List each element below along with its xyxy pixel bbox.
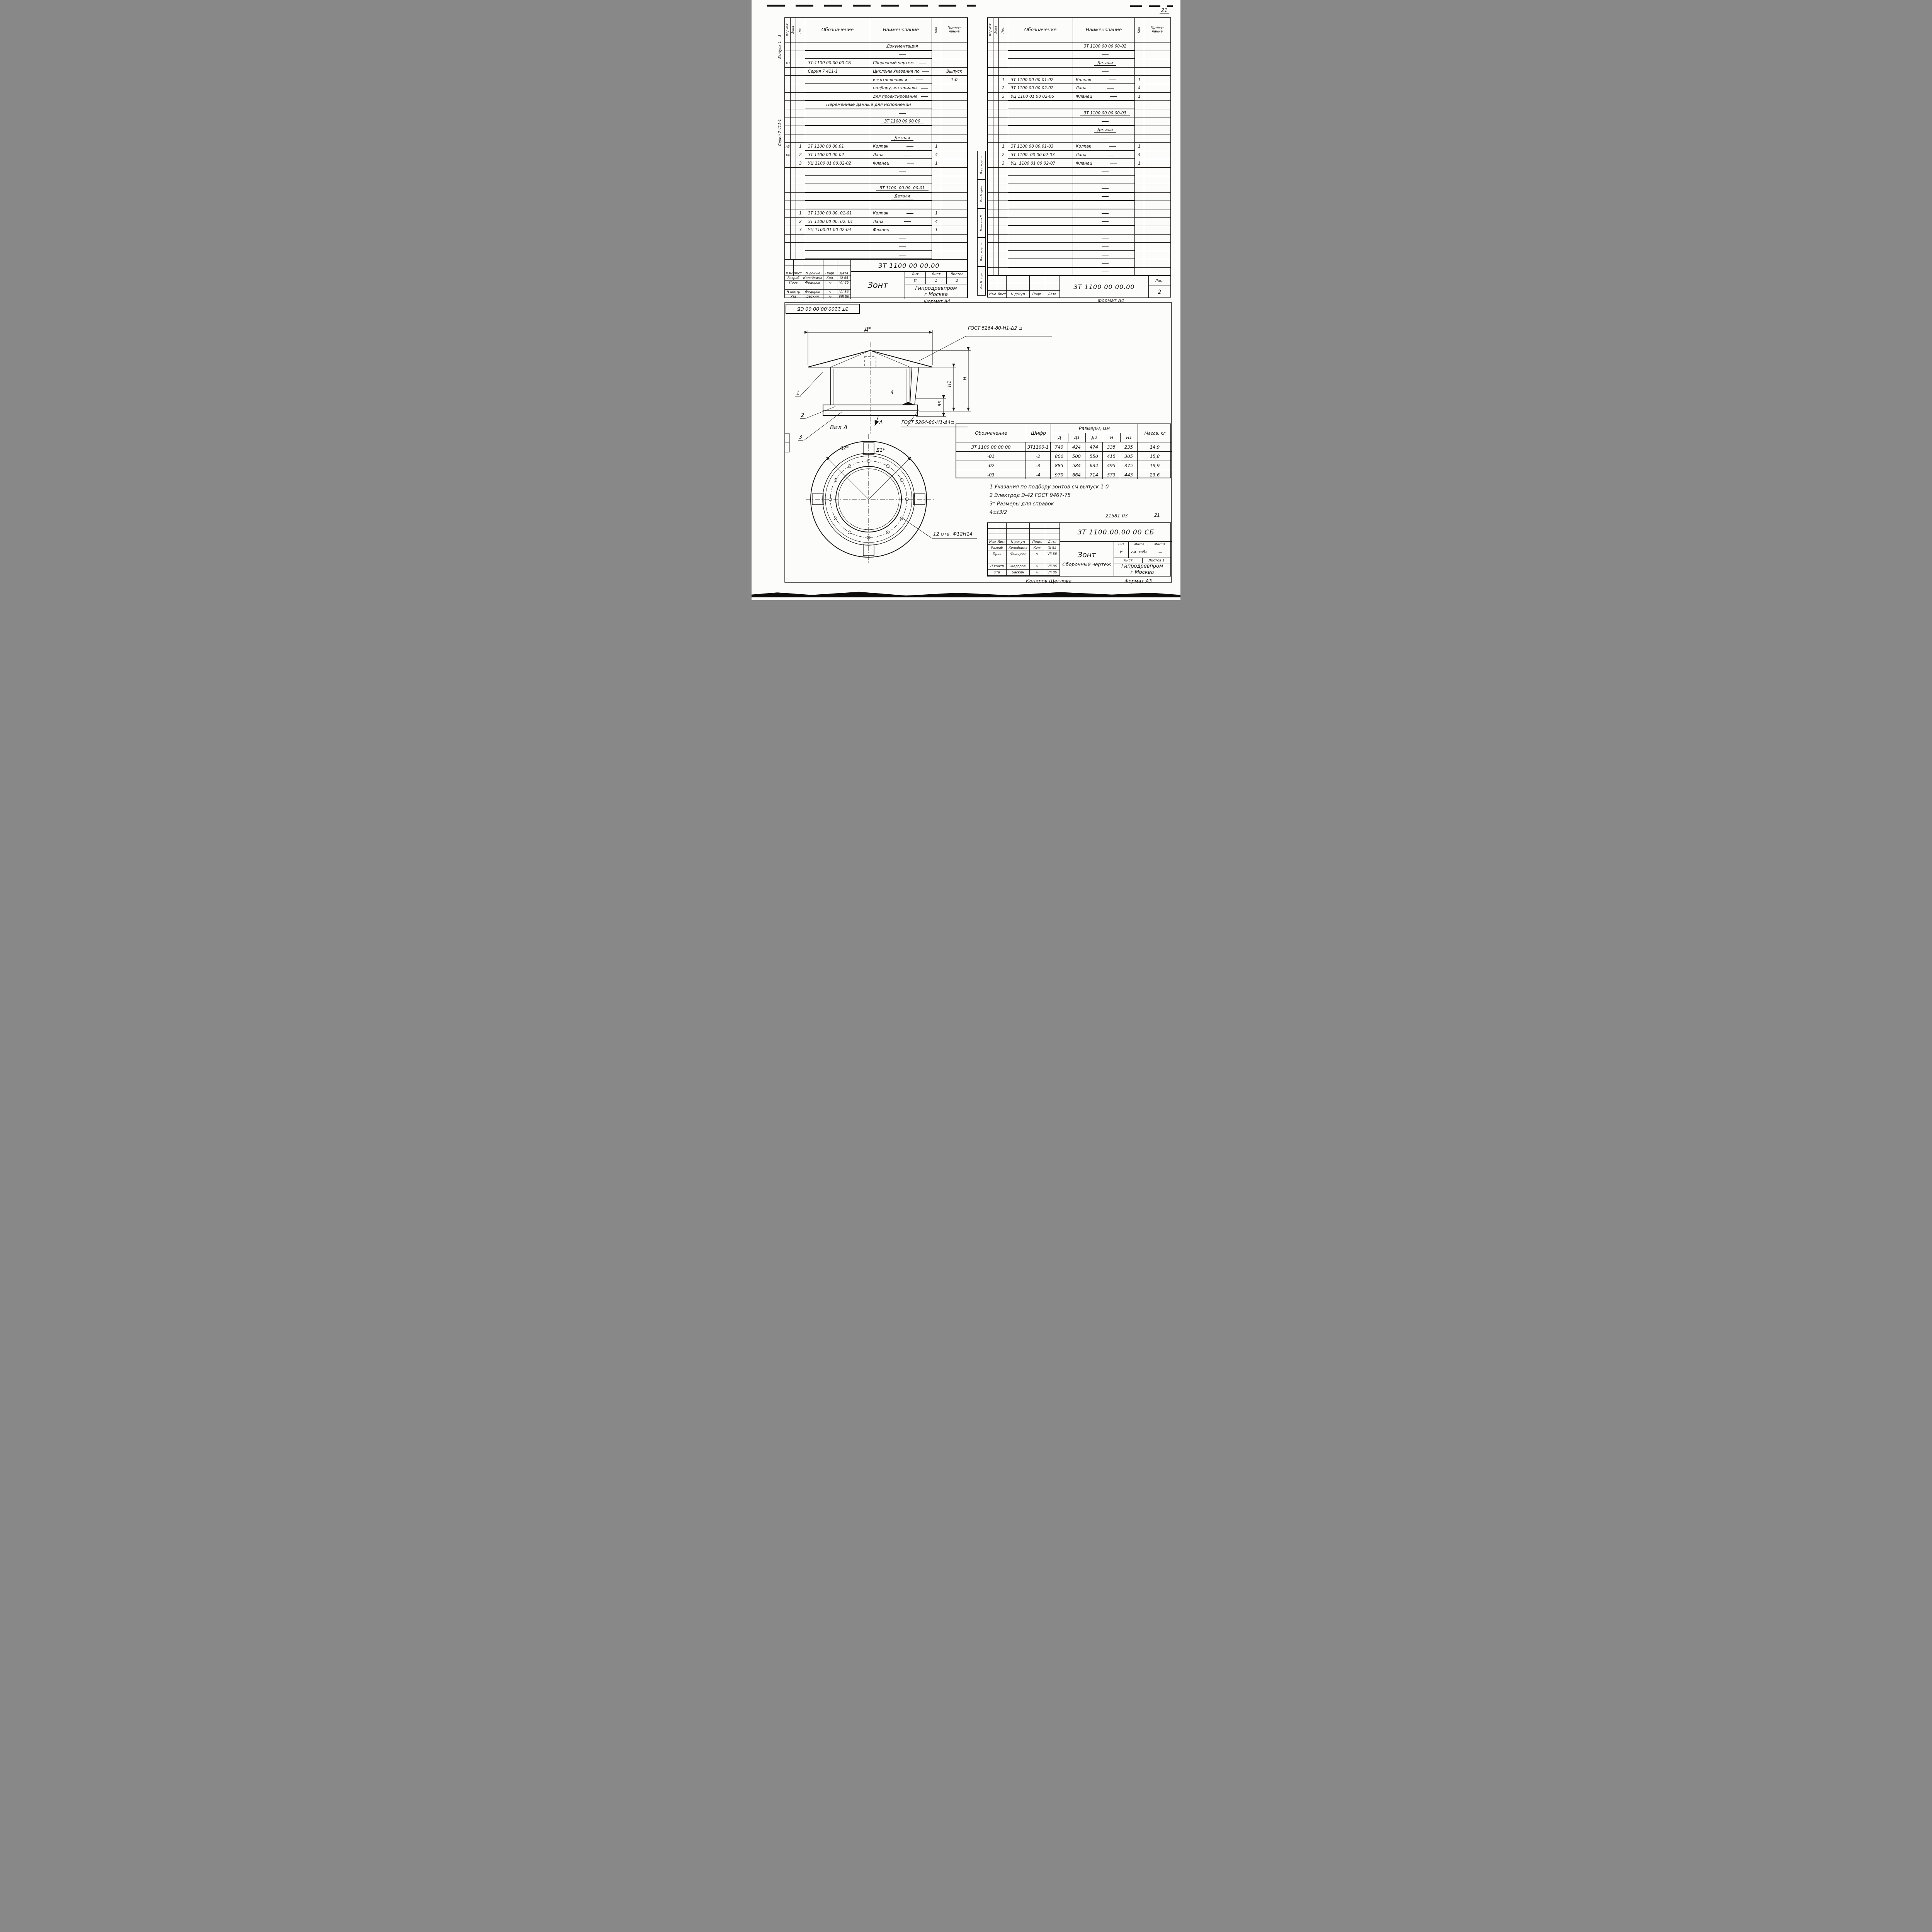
title-block-right: Изм Лист N докум Подп. Дата ЗТ 1100 00 0…	[988, 275, 1170, 297]
cell-qty: 1	[932, 143, 941, 151]
table-row	[988, 209, 1170, 218]
dim-d: 970	[1051, 470, 1068, 479]
doc-number-text: ЗТ 1100 00 00.00	[1073, 283, 1134, 291]
table-row	[988, 251, 1170, 260]
sig-name: Федоров	[1010, 552, 1026, 556]
sig-col-sign: Подп.	[1032, 540, 1043, 544]
org-name-line1: Гипродревпром	[1121, 563, 1163, 570]
cell-qty	[1135, 51, 1144, 59]
cell-qty	[932, 251, 941, 259]
cell-format: А3	[785, 143, 791, 151]
sig-row: Пров Федоров ∿ VII 86	[785, 281, 850, 285]
mass-label-text: Масса	[1134, 543, 1145, 546]
cell-qty	[1135, 117, 1144, 126]
dim-d1: 664	[1068, 470, 1085, 479]
cell-span-text	[1008, 201, 1135, 209]
dim-col-d1: Д1	[1068, 433, 1085, 442]
col-zone-label: Зона	[791, 26, 794, 34]
cell-note	[1144, 184, 1170, 192]
part-title: Зонт	[851, 271, 905, 299]
cell-qty	[1135, 126, 1144, 134]
d1-label-text: Д1*	[876, 447, 885, 453]
holes-label: 12 отв. Ф12Н14	[933, 531, 973, 537]
table-row: 1 ЗТ 1100 00 00.01-03 Колпак 1	[988, 143, 1170, 151]
cell-qty-text: 1	[1138, 161, 1141, 166]
cell-note	[1144, 218, 1170, 226]
cell-format: А3	[785, 59, 791, 67]
cell-pos-text: 2	[799, 219, 802, 224]
cell-zone	[791, 84, 796, 92]
cell-zone	[791, 176, 796, 184]
cell-qty-text: 4	[935, 153, 938, 157]
table-row: 2 ЗТ 1100 00 00 02-02 Лапа 4	[988, 84, 1170, 93]
cell-zone	[791, 151, 796, 159]
cell-note	[1144, 209, 1170, 218]
table-row: Документация	[785, 43, 967, 51]
cell-zone	[993, 117, 999, 126]
cell-qty	[932, 51, 941, 59]
col-qty-label: Кол	[935, 27, 938, 33]
dim-mass: 15,8	[1138, 452, 1172, 461]
dim-code: -2	[1026, 452, 1051, 461]
callout-3-text: 3	[799, 434, 802, 440]
cell-format	[785, 168, 791, 176]
cell-zone	[993, 176, 999, 184]
scale-label: Масшт.	[1150, 542, 1170, 547]
cell-format	[988, 201, 993, 209]
cell-qty	[932, 109, 941, 117]
sig-col-date: Дата	[1048, 293, 1056, 296]
cell-zone	[993, 101, 999, 109]
cell-qty	[932, 235, 941, 243]
cell-pos: 2	[999, 84, 1008, 92]
table-row: ЗТ 1100. 00.00. 00-01	[785, 184, 967, 193]
sig-name: Колейкина	[1009, 546, 1027, 550]
dim-col-h1-text: Н1	[1126, 435, 1132, 440]
frame-stamp-text: Инв N дубл	[980, 186, 983, 202]
dim-col-h: Н	[1103, 433, 1120, 442]
dim-col-d2: Д2	[1085, 433, 1103, 442]
dim-h: 335	[1103, 442, 1120, 451]
cell-qty: 1	[932, 159, 941, 167]
sig-col-izm: Изм	[989, 540, 996, 544]
dim-55-label: 55	[938, 401, 942, 406]
part-title: Зонт Сборочный чертеж	[1060, 542, 1114, 576]
cell-span-text	[805, 126, 932, 134]
copy-note: Копиров Щеглова	[1026, 578, 1071, 584]
cell-zone	[791, 76, 796, 84]
view-a	[806, 434, 977, 564]
dim-d1-text: 584	[1072, 463, 1081, 468]
frame-stamp-cell: Инв N подл	[977, 267, 986, 296]
cell-format	[988, 143, 993, 151]
doc-number: ЗТ 1100.00.00 00 СБ	[1060, 523, 1172, 542]
cell-pos: 2	[796, 151, 805, 159]
cell-zone	[791, 243, 796, 251]
format-caption-a3: Формат А3	[1124, 578, 1152, 584]
col-designation: Обозначение	[805, 18, 870, 42]
notes-list: 1 Указания по подбору зонтов см выпуск 1…	[990, 483, 1109, 517]
cell-zone	[791, 251, 796, 259]
dim-col-mass: Масса, кг	[1138, 424, 1172, 442]
cell-span-text	[805, 159, 932, 167]
sig-date: VIII 86	[839, 295, 849, 299]
cell-qty	[932, 184, 941, 192]
sheet-value-text: 2	[1158, 289, 1162, 295]
cell-format	[988, 209, 993, 218]
scale-value: —	[1150, 547, 1170, 558]
cell-span-text	[805, 209, 932, 218]
dim-designation: -01	[956, 452, 1026, 461]
table-row	[988, 184, 1170, 193]
cell-format	[988, 51, 993, 59]
frame-stamp-text: Подп и дата	[980, 156, 983, 174]
dim-mass: 23,6	[1138, 470, 1172, 479]
dim-mass-text: 14,9	[1150, 444, 1160, 450]
dim-d2-text: 634	[1090, 463, 1098, 468]
cell-pos-text: 2	[799, 153, 802, 157]
dim-col-sizes: Размеры, мм	[1051, 424, 1138, 433]
dim-h1-text: 375	[1124, 463, 1133, 468]
col-name: Наименование	[870, 18, 932, 42]
cell-format	[785, 251, 791, 259]
dim-col-h-text: Н	[1110, 435, 1113, 440]
cell-qty	[1135, 243, 1144, 251]
cell-zone	[993, 184, 999, 192]
cell-zone	[993, 93, 999, 101]
dim-mass: 14,9	[1138, 442, 1172, 451]
dim-code: ЗТ1100-1	[1026, 442, 1051, 451]
dim-h1: 443	[1120, 470, 1138, 479]
cell-note	[1144, 51, 1170, 59]
cell-span-text	[1008, 68, 1135, 76]
cell-note	[941, 143, 967, 151]
cell-pos: 1	[796, 209, 805, 218]
cell-pos	[999, 101, 1008, 109]
cell-qty	[1135, 59, 1144, 67]
margin-series-label: Серия 7 411-1	[778, 100, 782, 146]
cell-pos	[796, 43, 805, 51]
cell-pos	[796, 126, 805, 134]
cell-note	[941, 209, 967, 218]
cell-qty	[932, 76, 941, 84]
cell-pos	[999, 59, 1008, 67]
cell-span-text	[1008, 84, 1135, 92]
table-row	[988, 218, 1170, 226]
cell-format	[785, 43, 791, 51]
cell-zone	[993, 209, 999, 218]
cell-qty: 1	[1135, 93, 1144, 101]
dim-code: -4	[1026, 470, 1051, 479]
table-row	[988, 259, 1170, 268]
cell-qty-text: 4	[1138, 153, 1141, 157]
cell-format	[988, 168, 993, 176]
cell-span-text	[1008, 51, 1135, 59]
cell-zone	[791, 159, 796, 167]
cell-qty	[1135, 268, 1144, 276]
cell-zone	[993, 251, 999, 259]
sig-name: Федоров	[805, 281, 820, 285]
cell-span-text	[1008, 235, 1135, 243]
spec-table-right: Формат Зона Поз. Обозначение Наименовани…	[987, 17, 1171, 298]
cell-zone	[993, 151, 999, 159]
cell-span-text	[1008, 151, 1135, 159]
cell-note	[1144, 43, 1170, 51]
mass-value-text: см. табл	[1131, 550, 1148, 554]
cell-qty	[932, 117, 941, 126]
weld-note-bottom: ГОСТ 5264-80-Н1-Δ4⊐	[901, 420, 954, 425]
weld-note-top-text: ГОСТ 5264-80-Н1-Δ2 ⊐	[968, 325, 1022, 331]
cell-span-text	[1008, 101, 1135, 109]
cell-zone	[993, 51, 999, 59]
cell-pos-text: 1	[799, 211, 802, 216]
cell-format	[988, 109, 993, 117]
signature-icon: ∿	[1036, 565, 1039, 568]
cell-format	[785, 68, 791, 76]
dim-d-text: Д*	[864, 327, 871, 332]
cell-qty	[1135, 134, 1144, 143]
cell-pos	[796, 251, 805, 259]
frame-stamp-cell: Инв N дубл	[977, 180, 986, 209]
cell-span-text	[1008, 251, 1135, 259]
table-row: Детали	[785, 134, 967, 143]
weld-note-bottom-text: ГОСТ 5264-80-Н1-Δ4⊐	[901, 420, 954, 425]
table-row	[988, 226, 1170, 235]
signature-icon: Кол-	[827, 276, 834, 280]
cell-zone	[993, 109, 999, 117]
spec-body-left: Документация	[785, 43, 967, 259]
dim-d-label: Д*	[864, 327, 871, 332]
cell-note	[941, 51, 967, 59]
sig-row: Н контр Федоров ∿ VII 86	[988, 563, 1060, 570]
callout-2-text: 2	[801, 413, 804, 418]
mass-label: Масса	[1129, 542, 1150, 547]
sig-role: Пров	[993, 552, 1002, 556]
table-row	[988, 168, 1170, 176]
spec-header-right: Формат Зона Поз. Обозначение Наименовани…	[988, 18, 1170, 43]
cell-format	[988, 84, 993, 92]
cell-note	[1144, 109, 1170, 117]
cell-span-text	[805, 243, 932, 251]
part-title-text: Зонт	[1078, 551, 1096, 559]
col-format-label: Формат	[786, 24, 789, 36]
cell-zone	[993, 168, 999, 176]
cell-qty	[1135, 209, 1144, 218]
d2-label-text: Д2*	[840, 445, 849, 451]
dim-h: 573	[1103, 470, 1120, 479]
cell-format	[988, 176, 993, 184]
cell-format	[785, 218, 791, 226]
dim-col-code-text: Шифр	[1031, 430, 1046, 436]
dim-d1: 584	[1068, 461, 1085, 470]
cell-format	[988, 243, 993, 251]
cell-pos	[999, 201, 1008, 209]
col-note: Приме- чание	[1144, 18, 1170, 42]
cell-format	[785, 109, 791, 117]
cell-pos	[796, 193, 805, 201]
cell-qty	[1135, 251, 1144, 259]
dim-designation-text: -02	[987, 463, 995, 468]
cell-qty	[932, 168, 941, 176]
doc-number: ЗТ 1100 00 00.00	[851, 260, 967, 271]
cell-pos-text: 1	[1002, 144, 1005, 149]
callout-1: 1	[795, 390, 801, 396]
sheets-label-text: Листов	[951, 272, 964, 276]
cell-span-text	[1008, 159, 1135, 167]
page-number: 21	[1160, 8, 1169, 14]
dim-d-text: 800	[1055, 454, 1063, 459]
cell-format-text: А3	[786, 61, 790, 65]
cell-format	[785, 235, 791, 243]
cell-format	[988, 126, 993, 134]
dim-h-text: Н	[962, 377, 968, 380]
table-row: 3 УЦ 1100 01 00 02-06 Фланец 1	[988, 93, 1170, 101]
table-row: 3 УЦ 1100.01 00 02-04 Фланец 1	[785, 226, 967, 235]
cell-note: Выпуск	[941, 68, 967, 76]
cell-note	[941, 226, 967, 234]
cell-note	[1144, 159, 1170, 167]
cell-pos	[796, 76, 805, 84]
col-zone: Зона	[791, 18, 796, 42]
cell-note	[941, 84, 967, 92]
sig-rows-left: Разраб Колейкина Кол- XI 85 Пров Федоров…	[785, 276, 850, 299]
cell-note	[1144, 235, 1170, 243]
drawing-sheet: 21 Выпуск 1 – 3 Серия 7 411-1 Подп и дат…	[752, 0, 1180, 600]
cell-note	[1144, 226, 1170, 234]
cell-note	[1144, 251, 1170, 259]
cell-format	[988, 117, 993, 126]
lit-label-text: Лит	[1118, 543, 1124, 546]
cell-qty-text: 4	[935, 219, 938, 224]
sig-header: Изм Лист N докум Подп. Дата	[785, 271, 850, 276]
cell-qty	[932, 201, 941, 209]
cell-span-text	[805, 168, 932, 176]
cell-span-text	[805, 117, 932, 126]
cell-format	[988, 151, 993, 159]
cell-note	[1144, 68, 1170, 76]
sheets-label: Листов 1	[1143, 558, 1170, 563]
cell-pos	[796, 168, 805, 176]
cell-pos	[999, 193, 1008, 201]
cell-zone	[791, 134, 796, 143]
sig-row: Разраб Колейкина Кол- XI 85	[785, 276, 850, 281]
dimensions-table: Обозначение Шифр Размеры, мм Масса, кг Д…	[956, 423, 1171, 478]
frame-stamp-cell: Подп и дата	[977, 238, 986, 267]
dim-code-text: -4	[1036, 472, 1040, 478]
sig-date: VII 86	[1048, 552, 1057, 556]
dim-h-text: 415	[1107, 454, 1116, 459]
dim-row: ЗТ 1100 00 00 00 ЗТ1100-1 740 424 474 33…	[956, 442, 1172, 451]
cell-note: 1-0	[941, 76, 967, 84]
table-row: 1 ЗТ 1100 00 00. 01-01 Колпак 1	[785, 209, 967, 218]
table-row	[988, 235, 1170, 243]
dim-h1: 305	[1120, 452, 1138, 461]
sig-header: Изм Лист N докум Подп. Дата	[988, 539, 1060, 545]
sig-col-list: Лист	[998, 540, 1006, 544]
sheet-label-text: Лист	[1124, 559, 1133, 563]
table-row: ЗТ 1100.00.00.00-03	[988, 109, 1170, 118]
table-row: 1 ЗТ 1100 00 00 01-02 Колпак 1	[988, 76, 1170, 84]
margin-issue-text: Выпуск 1 – 3	[778, 34, 782, 59]
dim-designation: -02	[956, 461, 1026, 470]
table-row: подбору, материалы	[785, 84, 967, 93]
cell-zone	[993, 84, 999, 92]
cell-span-text	[1008, 59, 1135, 67]
dim-d2-text: 474	[1090, 444, 1098, 450]
cell-zone	[791, 68, 796, 76]
cell-pos	[796, 101, 805, 109]
cell-note	[941, 201, 967, 209]
sig-date: VII 86	[839, 290, 849, 294]
dim-d-text: 970	[1055, 472, 1063, 478]
cell-qty	[932, 126, 941, 134]
dim-h-text: 335	[1107, 444, 1116, 450]
col-pos: Поз.	[999, 18, 1008, 42]
dim-d2: 550	[1085, 452, 1103, 461]
cell-qty	[1135, 193, 1144, 201]
cell-note	[941, 43, 967, 51]
col-pos-label: Поз.	[1002, 27, 1005, 34]
sig-rows-bottom: Разраб Колейкина Кол- XI 85 Пров Федоров…	[988, 545, 1060, 576]
cell-qty	[932, 93, 941, 101]
dim-designation-text: -01	[987, 454, 995, 459]
dim-rows: ЗТ 1100 00 00 00 ЗТ1100-1 740 424 474 33…	[956, 442, 1172, 479]
cell-qty	[1135, 184, 1144, 192]
dim-h-label: Н	[962, 377, 968, 380]
cell-note	[1144, 126, 1170, 134]
dim-h1-text: 443	[1124, 472, 1133, 478]
cell-qty	[1135, 226, 1144, 234]
org-name-line1: Гипродревпром	[915, 286, 957, 292]
cell-span-text	[805, 68, 932, 76]
cell-zone	[993, 243, 999, 251]
col-note-label: Приме- чание	[946, 26, 963, 34]
cell-note	[1144, 268, 1170, 276]
cell-zone	[791, 226, 796, 234]
dim-code: -3	[1026, 461, 1051, 470]
table-row	[785, 201, 967, 209]
holes-label-text: 12 отв. Ф12Н14	[933, 531, 973, 537]
cell-qty: 1	[1135, 76, 1144, 84]
cell-span-text	[805, 43, 932, 51]
lit-value-text: И	[914, 279, 917, 283]
cell-format	[988, 93, 993, 101]
dim-d1-text: 664	[1072, 472, 1081, 478]
cell-pos-text: 1	[799, 144, 802, 149]
cell-pos-text: 3	[799, 228, 802, 232]
cell-pos: 1	[999, 76, 1008, 84]
lit-label-text: Лит	[912, 272, 919, 276]
cell-format	[785, 84, 791, 92]
cell-pos	[796, 51, 805, 59]
cell-pos	[999, 168, 1008, 176]
lit-value: И	[905, 277, 926, 284]
sig-col-sign: Подп.	[1032, 293, 1043, 296]
table-row: 2 ЗТ 1100. 00 00 02-03 Лапа 4	[988, 151, 1170, 160]
table-row	[988, 193, 1170, 201]
cell-qty-text: 1	[935, 161, 938, 166]
cell-zone	[993, 143, 999, 151]
col-note-label: Приме- чание	[1148, 26, 1166, 34]
format-caption-a3-text: Формат А3	[1124, 578, 1152, 584]
cell-qty	[932, 43, 941, 51]
org-name-line2: г Москва	[924, 292, 948, 298]
col-name-label: Наименование	[1086, 27, 1122, 32]
cell-format	[785, 184, 791, 192]
cell-zone	[791, 209, 796, 218]
cell-note	[1144, 93, 1170, 101]
cell-format	[988, 218, 993, 226]
